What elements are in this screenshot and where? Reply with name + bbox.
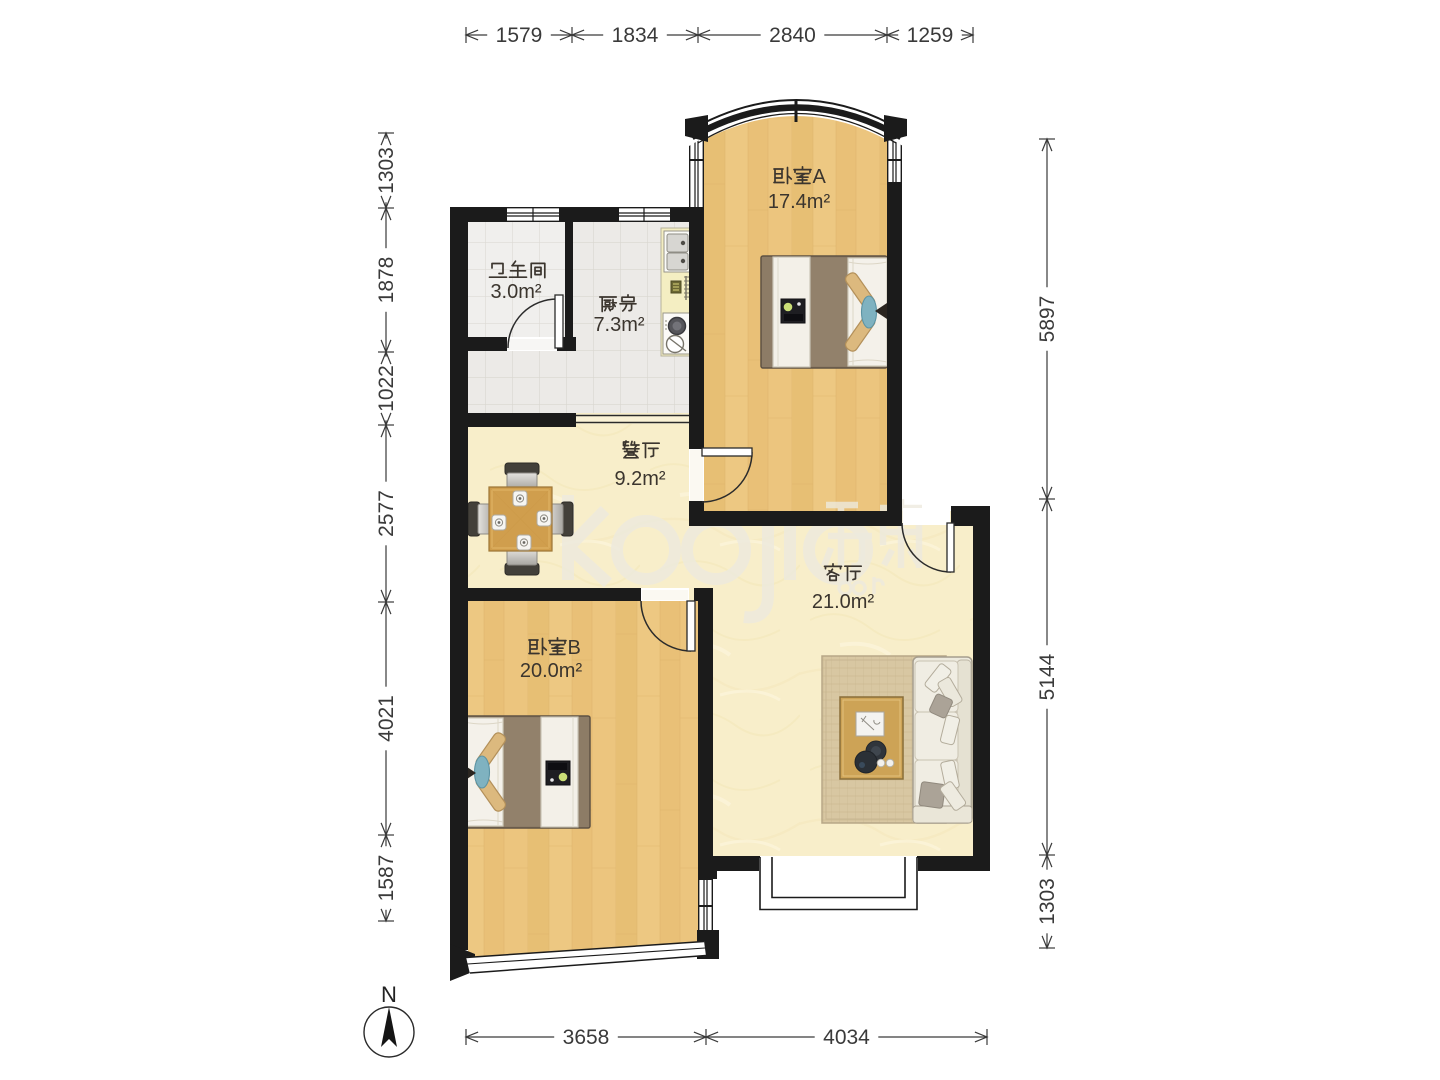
svg-text:21.0m²: 21.0m²	[812, 591, 875, 613]
svg-text:7.3m²: 7.3m²	[593, 314, 644, 336]
svg-text:1878: 1878	[375, 257, 398, 304]
svg-text:3.0m²: 3.0m²	[490, 281, 541, 303]
svg-text:9.2m²: 9.2m²	[614, 468, 665, 490]
svg-text:4034: 4034	[823, 1026, 870, 1049]
svg-text:1303: 1303	[1036, 878, 1059, 925]
svg-text:5144: 5144	[1036, 653, 1059, 700]
svg-text:1579: 1579	[496, 24, 543, 47]
svg-text:1259: 1259	[907, 24, 954, 47]
svg-text:1587: 1587	[375, 855, 398, 902]
svg-text:2577: 2577	[375, 490, 398, 537]
svg-text:4021: 4021	[375, 695, 398, 742]
svg-text:1834: 1834	[612, 24, 659, 47]
svg-text:B: B	[568, 637, 581, 659]
svg-text:A: A	[813, 166, 827, 188]
svg-text:N: N	[381, 982, 397, 1007]
svg-text:5897: 5897	[1036, 296, 1059, 343]
svg-text:1022: 1022	[375, 365, 398, 412]
svg-text:2840: 2840	[769, 24, 816, 47]
svg-text:17.4m²: 17.4m²	[768, 191, 831, 213]
svg-text:20.0m²: 20.0m²	[520, 660, 583, 682]
svg-text:1303: 1303	[375, 147, 398, 194]
svg-text:3658: 3658	[563, 1026, 610, 1049]
